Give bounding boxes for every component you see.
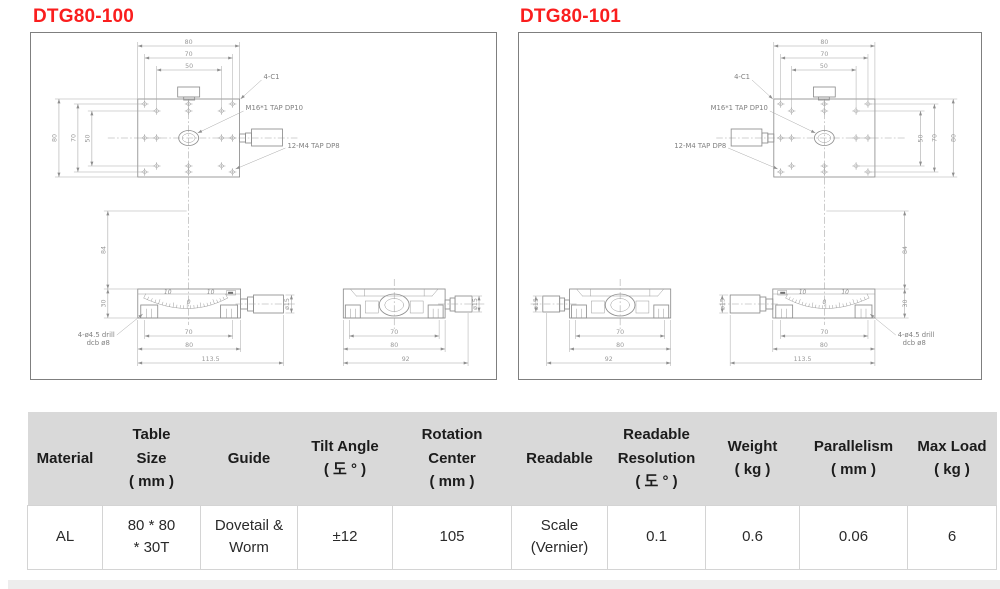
drawing-label: 84 bbox=[902, 246, 909, 254]
drawing-label: 84 bbox=[101, 246, 108, 254]
value-cell-7: 0.6 bbox=[706, 505, 800, 569]
spec-header-row: MaterialTable Size ( mm )GuideTilt Angle… bbox=[28, 412, 997, 505]
drawing-label: 80 bbox=[390, 342, 398, 349]
header-cell-6: Readable Resolution ( 도 ° ) bbox=[608, 412, 706, 505]
drawing-label: 10 bbox=[799, 289, 807, 296]
header-cell-1: Table Size ( mm ) bbox=[103, 412, 201, 505]
technical-drawing-DTG80-101: 8070508070504-C1M16*1 TAP DP1012-M4 TAP … bbox=[519, 33, 981, 379]
drawing-label: ø15 bbox=[472, 298, 479, 310]
next-section-band bbox=[8, 580, 1000, 589]
header-cell-0: Material bbox=[28, 412, 103, 505]
drawing-label: 80 bbox=[950, 134, 957, 142]
value-cell-5: Scale (Vernier) bbox=[512, 505, 608, 569]
drawing-label: 80 bbox=[616, 342, 624, 349]
value-cell-9: 6 bbox=[908, 505, 997, 569]
drawing-label: 70 bbox=[616, 329, 624, 336]
drawing-panel-dtg80-101: 8070508070504-C1M16*1 TAP DP1012-M4 TAP … bbox=[518, 32, 982, 380]
drawing-label: 50 bbox=[85, 134, 92, 142]
drawing-label: 12-M4 TAP DP8 bbox=[674, 142, 726, 150]
drawing-label: 70 bbox=[820, 51, 828, 58]
drawing-label: 92 bbox=[402, 356, 410, 363]
drawing-label: 80 bbox=[185, 39, 193, 46]
drawing-label: 92 bbox=[605, 356, 613, 363]
drawing-label: ø15 bbox=[533, 298, 540, 310]
drawing-label: 70 bbox=[820, 329, 828, 336]
drawing-label: 70 bbox=[185, 51, 193, 58]
drawing-label: 4-ø4.5 drill bbox=[898, 331, 935, 339]
spec-value-row: AL80 * 80 * 30TDovetail & Worm±12105Scal… bbox=[28, 505, 997, 569]
drawing-label: dcb ø8 bbox=[87, 339, 110, 347]
technical-drawing-DTG80-100: 8070508070504-C1M16*1 TAP DP1012-M4 TAP … bbox=[31, 33, 496, 379]
drawing-label: M16*1 TAP DP10 bbox=[246, 104, 304, 112]
drawing-label: 113.5 bbox=[202, 356, 220, 363]
drawing-label: 70 bbox=[71, 134, 78, 142]
drawing-label: 4-ø4.5 drill bbox=[78, 331, 115, 339]
drawing-label: 0 bbox=[187, 299, 191, 306]
drawing-label: 70 bbox=[390, 329, 398, 336]
drawing-label: 30 bbox=[101, 299, 108, 307]
header-cell-8: Parallelism ( mm ) bbox=[800, 412, 908, 505]
drawing-label: 10 bbox=[207, 289, 215, 296]
drawing-label: 10 bbox=[164, 289, 172, 296]
header-cell-4: Rotation Center ( mm ) bbox=[393, 412, 512, 505]
value-cell-0: AL bbox=[28, 505, 103, 569]
value-cell-2: Dovetail & Worm bbox=[201, 505, 298, 569]
drawing-label: 50 bbox=[185, 63, 193, 70]
drawing-label: 113.5 bbox=[794, 356, 812, 363]
drawing-label: ø15 bbox=[284, 298, 291, 310]
value-cell-3: ±12 bbox=[298, 505, 393, 569]
drawing-label: 30 bbox=[902, 299, 909, 307]
header-cell-2: Guide bbox=[201, 412, 298, 505]
value-cell-4: 105 bbox=[393, 505, 512, 569]
drawing-label: 12-M4 TAP DP8 bbox=[287, 142, 339, 150]
drawing-panel-dtg80-100: 8070508070504-C1M16*1 TAP DP1012-M4 TAP … bbox=[30, 32, 497, 380]
drawing-label: 80 bbox=[185, 342, 193, 349]
value-cell-6: 0.1 bbox=[608, 505, 706, 569]
header-cell-7: Weight ( kg ) bbox=[706, 412, 800, 505]
drawing-label: dcb ø8 bbox=[903, 339, 926, 347]
value-cell-8: 0.06 bbox=[800, 505, 908, 569]
drawing-label: 50 bbox=[918, 134, 925, 142]
drawing-label: 80 bbox=[820, 39, 828, 46]
header-cell-3: Tilt Angle ( 도 ° ) bbox=[298, 412, 393, 505]
drawing-label: 70 bbox=[932, 134, 939, 142]
drawing-label: 10 bbox=[841, 289, 849, 296]
drawing-label: 0 bbox=[822, 299, 826, 306]
drawing-label: 80 bbox=[52, 134, 59, 142]
drawing-label: 70 bbox=[185, 329, 193, 336]
model-title-dtg80-100: DTG80-100 bbox=[33, 6, 134, 28]
model-title-dtg80-101: DTG80-101 bbox=[520, 6, 621, 28]
catalog-page: DTG80-100 DTG80-101 8070508070504-C1M16*… bbox=[0, 0, 1000, 589]
value-cell-1: 80 * 80 * 30T bbox=[103, 505, 201, 569]
header-cell-5: Readable bbox=[512, 412, 608, 505]
drawing-label: ø15 bbox=[719, 298, 726, 310]
drawing-label: 4-C1 bbox=[734, 73, 750, 81]
spec-table: MaterialTable Size ( mm )GuideTilt Angle… bbox=[27, 412, 997, 570]
drawing-label: M16*1 TAP DP10 bbox=[711, 104, 768, 112]
drawing-label: 80 bbox=[820, 342, 828, 349]
drawing-label: 50 bbox=[820, 63, 828, 70]
drawing-label: 4-C1 bbox=[264, 73, 280, 81]
header-cell-9: Max Load ( kg ) bbox=[908, 412, 997, 505]
